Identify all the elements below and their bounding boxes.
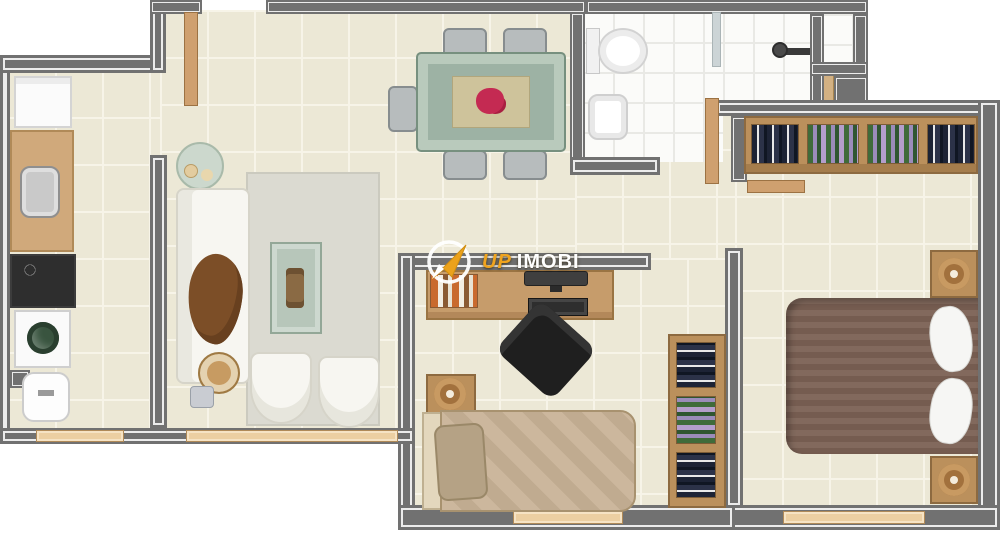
brand-text: UPIMOBI [482, 251, 580, 274]
small-plant [190, 386, 214, 408]
armchair-pouf [318, 356, 380, 428]
office-lamp-bulb [446, 390, 454, 398]
lamp-bulb [950, 270, 958, 278]
shower-head [772, 42, 788, 58]
office-wardrobe [668, 334, 726, 508]
master-wardrobe [744, 116, 978, 174]
brand-imobi: IMOBI [517, 251, 580, 273]
table-decor [286, 268, 304, 308]
armchair-pouf [250, 352, 312, 424]
wardrobe-clothes-section [676, 452, 716, 498]
kitchen-window [36, 430, 124, 442]
bathroom-sink [588, 94, 628, 140]
wall-left-exterior [0, 55, 10, 444]
dining-chair [443, 150, 487, 180]
brand-up: UP [482, 251, 512, 273]
master-bedroom-window [783, 511, 925, 524]
wall-top-living [266, 0, 586, 14]
wall-top-bathroom [586, 0, 868, 14]
shower-glass-partition [712, 12, 721, 67]
living-room-window [186, 430, 398, 442]
laundry-tub [22, 372, 70, 422]
laundry-faucet [38, 390, 54, 396]
wall-bathroom-bottom [570, 157, 660, 175]
single-bed-pillow [433, 422, 488, 501]
wall-kitchen-living-divider [150, 155, 167, 428]
wardrobe-clothes-section [867, 124, 919, 164]
paper-plane-arrow-icon [424, 237, 474, 287]
office-window [513, 511, 623, 524]
stove-cooktop [10, 254, 76, 308]
shower-floor [723, 12, 813, 102]
wardrobe-clothes-section [676, 342, 716, 388]
dining-chair [388, 86, 418, 132]
kitchen-sink [20, 166, 60, 218]
watermark-logo: UPIMOBI [424, 236, 614, 288]
wardrobe-clothes-section [751, 124, 799, 164]
round-side-table [176, 142, 224, 190]
refrigerator [14, 76, 72, 128]
wardrobe-clothes-section [807, 124, 859, 164]
wall-kitchen-top [0, 55, 166, 73]
wardrobe-clothes-section [927, 124, 975, 164]
niche-floor [822, 14, 856, 62]
washing-machine-door [27, 322, 59, 354]
master-bedroom-door [747, 180, 805, 193]
wall-master-top [715, 100, 1000, 116]
apartment-floor-plan: UPIMOBI [0, 0, 1000, 535]
toilet-bowl [598, 28, 648, 74]
wall-master-right-exterior [978, 100, 1000, 530]
bathroom-door [705, 98, 719, 184]
lamp-bulb [950, 476, 958, 484]
dining-chair [503, 150, 547, 180]
wall-office-master-divider [725, 248, 743, 508]
wall-niche-bottom [810, 62, 868, 76]
wall-office-left [398, 253, 415, 530]
wall-bathroom-left [570, 12, 585, 175]
wall-niche-left [810, 14, 824, 104]
wardrobe-clothes-section [676, 396, 716, 444]
cups-on-table [184, 164, 198, 178]
entrance-door [184, 12, 198, 106]
